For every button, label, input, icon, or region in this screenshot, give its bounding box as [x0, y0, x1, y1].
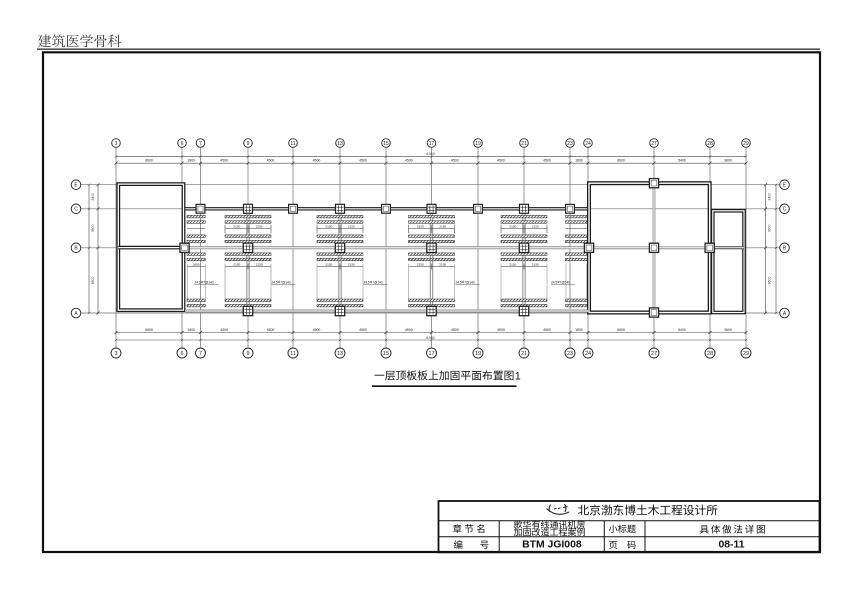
svg-text:11: 11: [290, 351, 296, 357]
svg-text:3: 3: [115, 141, 118, 147]
svg-text:4500: 4500: [497, 328, 505, 332]
svg-text:6600: 6600: [617, 328, 625, 332]
svg-text:2150: 2150: [439, 224, 446, 228]
svg-text:6.900: 6.900: [426, 336, 435, 340]
svg-text:15: 15: [383, 141, 389, 147]
svg-text:27: 27: [651, 351, 657, 357]
svg-text:6500: 6500: [91, 277, 95, 285]
svg-text:13: 13: [337, 141, 343, 147]
svg-text:2150: 2150: [532, 224, 539, 228]
svg-text:3900: 3900: [768, 224, 772, 232]
svg-text:2150: 2150: [325, 262, 332, 266]
svg-text:6500: 6500: [768, 277, 772, 285]
svg-text:24.5Φ7@140: 24.5Φ7@140: [195, 280, 214, 284]
svg-text:2150: 2150: [233, 262, 240, 266]
svg-text:08-11: 08-11: [718, 539, 744, 550]
svg-text:4500: 4500: [359, 328, 367, 332]
svg-text:4500: 4500: [267, 328, 275, 332]
svg-text:4500: 4500: [267, 159, 275, 163]
svg-text:28: 28: [707, 351, 713, 357]
svg-text:15: 15: [383, 351, 389, 357]
svg-text:1800: 1800: [187, 328, 195, 332]
svg-text:24.5Φ7@140: 24.5Φ7@140: [364, 280, 383, 284]
svg-text:6600: 6600: [145, 159, 153, 163]
svg-text:2150: 2150: [509, 262, 516, 266]
svg-text:1800: 1800: [187, 159, 195, 163]
svg-text:2150: 2150: [348, 224, 355, 228]
svg-text:17: 17: [429, 141, 435, 147]
svg-text:3600: 3600: [724, 159, 732, 163]
svg-text:24: 24: [585, 141, 591, 147]
svg-text:2150: 2150: [256, 224, 263, 228]
svg-text:17: 17: [428, 351, 434, 357]
svg-text:2150: 2150: [417, 262, 424, 266]
svg-text:6.900: 6.900: [426, 152, 435, 156]
svg-text:6600: 6600: [617, 159, 625, 163]
svg-text:2150: 2150: [325, 224, 332, 228]
svg-text:23: 23: [567, 351, 573, 357]
svg-text:21: 21: [521, 141, 527, 147]
svg-text:9: 9: [247, 141, 250, 147]
svg-text:4500: 4500: [405, 328, 413, 332]
svg-text:11: 11: [290, 141, 295, 147]
svg-text:9: 9: [246, 351, 249, 357]
svg-text:19: 19: [475, 351, 481, 357]
svg-text:3600: 3600: [724, 328, 732, 332]
svg-text:6600: 6600: [145, 328, 153, 332]
svg-text:3: 3: [114, 351, 117, 357]
svg-text:21: 21: [521, 351, 527, 357]
svg-text:1800: 1800: [575, 159, 583, 163]
svg-text:4500: 4500: [451, 159, 459, 163]
svg-text:1800: 1800: [193, 262, 200, 266]
svg-text:C: C: [783, 207, 787, 213]
svg-text:2150: 2150: [532, 262, 539, 266]
svg-text:23: 23: [567, 141, 573, 147]
svg-text:4500: 4500: [543, 328, 551, 332]
svg-text:2150: 2150: [509, 224, 516, 228]
svg-text:C: C: [74, 207, 78, 213]
svg-text:29: 29: [743, 351, 749, 357]
svg-text:4500: 4500: [313, 159, 321, 163]
svg-text:29: 29: [743, 141, 749, 147]
svg-text:2150: 2150: [233, 224, 240, 228]
svg-text:7: 7: [199, 141, 202, 147]
svg-text:4500: 4500: [359, 159, 367, 163]
svg-text:4500: 4500: [451, 328, 459, 332]
svg-text:24.5Φ7@140: 24.5Φ7@140: [551, 280, 570, 284]
svg-text:4500: 4500: [313, 328, 321, 332]
svg-text:3900: 3900: [91, 224, 95, 232]
svg-text:1800: 1800: [575, 328, 583, 332]
svg-text:4500: 4500: [405, 159, 413, 163]
svg-text:4500: 4500: [220, 328, 228, 332]
svg-text:6: 6: [180, 351, 183, 357]
svg-text:2150: 2150: [256, 262, 263, 266]
svg-text:28: 28: [707, 141, 713, 147]
svg-text:6: 6: [181, 141, 184, 147]
svg-text:1: 1: [515, 370, 521, 382]
svg-text:24: 24: [585, 351, 591, 357]
svg-text:2400: 2400: [768, 193, 772, 201]
svg-text:2150: 2150: [417, 224, 424, 228]
svg-text:5400: 5400: [678, 159, 686, 163]
svg-text:24.5Φ7@140: 24.5Φ7@140: [272, 280, 291, 284]
svg-text:13: 13: [337, 351, 343, 357]
svg-text:BTM JGI008: BTM JGI008: [522, 540, 582, 551]
svg-text:2150: 2150: [348, 262, 355, 266]
svg-text:4500: 4500: [220, 159, 228, 163]
svg-text:2400: 2400: [91, 193, 95, 201]
svg-text:2150: 2150: [439, 262, 446, 266]
svg-text:4500: 4500: [543, 159, 551, 163]
svg-text:4500: 4500: [497, 159, 505, 163]
svg-text:24.5Φ7@140: 24.5Φ7@140: [456, 280, 475, 284]
svg-text:27: 27: [651, 141, 657, 147]
svg-text:7: 7: [199, 351, 202, 357]
svg-text:5400: 5400: [678, 328, 686, 332]
svg-text:19: 19: [475, 141, 481, 147]
